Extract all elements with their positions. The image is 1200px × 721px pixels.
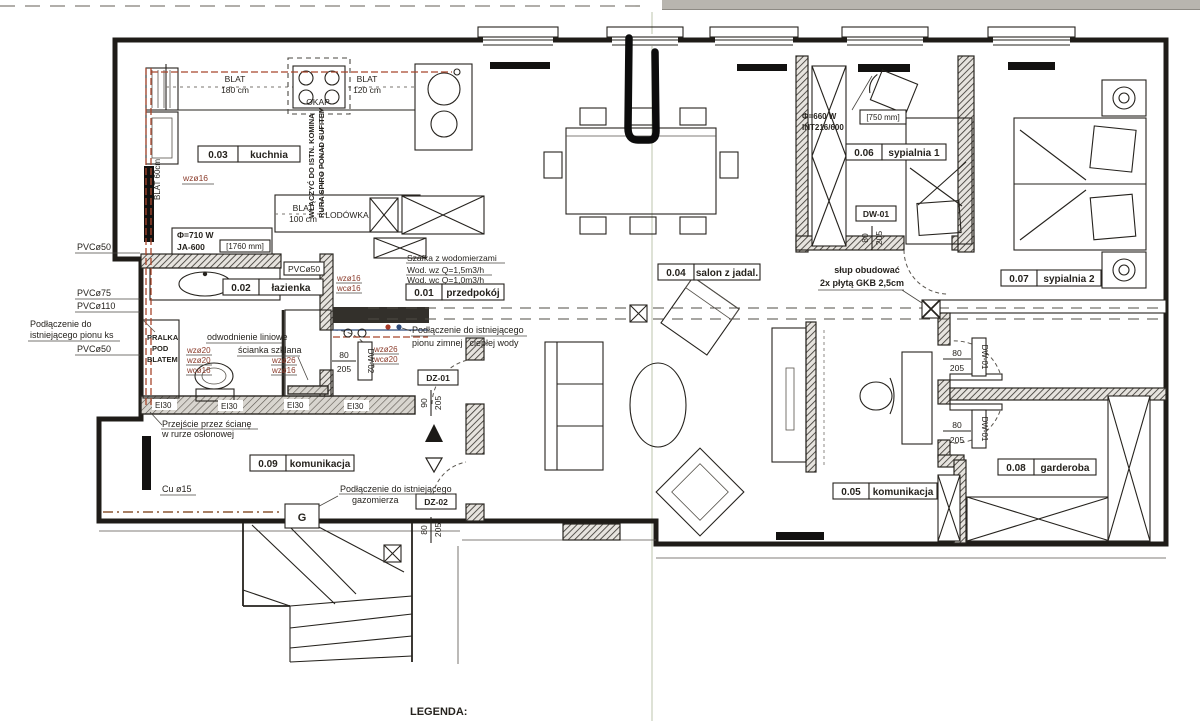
room-name: łazienka: [272, 283, 311, 294]
garderoba-wardrobe-right: [1108, 396, 1150, 541]
room-name: sypialnia 2: [1043, 274, 1095, 285]
column-note-line2: 2x płytą GKB 2,5cm: [820, 278, 904, 288]
pralka-line2: POD: [152, 344, 169, 353]
entry-wall-hatched-segment: [563, 524, 620, 540]
blat180-size: 180 cm: [221, 85, 249, 95]
door-height: 205: [950, 435, 964, 445]
bedroom2-furniture: [1014, 80, 1146, 288]
scan-top-gray-band: [662, 0, 1200, 9]
door-code: DZ-02: [424, 497, 448, 507]
room-number: 0.07: [1009, 274, 1029, 285]
column-symbol: [922, 300, 940, 318]
bathroom-top-wall: [141, 254, 281, 268]
connection-point-hot: [385, 324, 390, 329]
bedroom1-wardrobe: [812, 66, 846, 246]
bedroom1-left-wall: [796, 56, 808, 252]
gas-note-line2: gazomierza: [352, 495, 399, 505]
fridge: [370, 198, 398, 232]
wz16-kitchen-label: wzø16: [182, 173, 208, 183]
entry-triangle-down: [426, 458, 442, 472]
radiator-power: Φ=660 W: [802, 112, 837, 121]
room-label-komunikacja-05: 0.05 komunikacja: [833, 483, 937, 499]
linear-drain: [288, 386, 328, 394]
dining-table: [544, 108, 738, 234]
kitchen-radiator-label: Φ=710 W JA-600 [1760 mm]: [172, 228, 272, 254]
hall-wardrobe-1: [402, 196, 484, 234]
pvc50-bath-label: PVCø50: [288, 264, 320, 274]
gas-meter-box: G: [285, 504, 319, 528]
water-note-line1: Podłączenie do istniejącego: [412, 325, 524, 335]
existing-riser-black: [142, 436, 151, 490]
window-salon-1: [478, 27, 558, 46]
bedroom2-bed: [1014, 118, 1146, 250]
pvc50-top-label: PVCø50: [77, 242, 111, 252]
pvc50-bottom-label: PVCø50: [77, 344, 111, 354]
hall-salon-wall-c: [466, 504, 484, 521]
chimney-note-line2: RURA SPIRO PONAD SUFITEM: [317, 107, 326, 218]
room-label-garderoba: 0.08 garderoba: [998, 459, 1096, 475]
door-code: DW-01: [980, 417, 989, 442]
wz16-bath-label: wzø16: [271, 366, 296, 375]
room-number: 0.01: [414, 288, 434, 299]
room-number: 0.06: [854, 148, 874, 159]
radiator-salon-1: [490, 62, 550, 69]
ks-note-line1: Podłączenie do: [30, 319, 92, 329]
wz16-hall-label: wzø16: [336, 274, 361, 283]
door-width: 80: [952, 348, 962, 358]
radiator-model: JA-600: [177, 242, 205, 252]
ks-note-line2: istniejącego pionu ks: [30, 330, 114, 340]
door-width: 80: [952, 420, 962, 430]
room-label-sypialnia2: 0.07 sypialnia 2: [1001, 270, 1101, 286]
legend-title: LEGENDA:: [410, 706, 467, 718]
nightstand-top: [1102, 80, 1146, 116]
shaft-symbol-salon: [630, 305, 647, 322]
room-number: 0.03: [208, 150, 228, 161]
door-arc-bedroom1: [904, 250, 948, 294]
office-chair: [860, 382, 892, 410]
door-width: 80: [419, 525, 429, 535]
salon-media-wall: [806, 322, 816, 472]
scanned-floor-plan: 0.03 kuchnia 0.02 łazienka 0.01 przedpok…: [0, 0, 1200, 721]
meter-title: Szafka z wodomierzami: [407, 253, 497, 263]
ei30-4: EI30: [347, 402, 364, 411]
kitchen-annotations: BLAT 180 cm OKAP BLAT 120 cm BLAT 100 cm…: [153, 74, 381, 254]
sink-bowl-1: [428, 73, 460, 105]
door-width: 80: [860, 233, 870, 243]
radiator-bedroom2: [1008, 62, 1055, 70]
radiator-power: Φ=710 W: [177, 230, 214, 240]
gas-note-line1: Podłączenie do istniejącego: [340, 484, 452, 494]
wc16-hall-label: wcø16: [336, 284, 361, 293]
room-name: komunikacja: [290, 459, 351, 470]
sofa: [545, 342, 603, 470]
dz01-door-label: DZ-01 90 205: [418, 370, 458, 416]
floor-plan-canvas: 0.03 kuchnia 0.02 łazienka 0.01 przedpok…: [0, 0, 1200, 721]
meter-line2: Wod. wc Q=1,0m3/h: [407, 275, 484, 285]
sink-bowl-2: [431, 111, 457, 137]
salon-annotations: słup obudować 2x płytą GKB 2,5cm: [818, 265, 922, 303]
media-sideboard: [772, 328, 806, 462]
pralka-line3: BLATEM: [147, 355, 178, 364]
pralka-line1: PRALKA: [147, 333, 179, 342]
basin-tap: [203, 272, 207, 276]
room-name: przedpokój: [446, 288, 500, 299]
dw01-garderoba-label-2: 80 205 DW-01: [943, 410, 989, 448]
room-name: salon z jadal.: [696, 268, 758, 279]
room-name: kuchnia: [250, 150, 288, 161]
door-width: 90: [419, 398, 429, 408]
wc20-hall-label: wcø20: [373, 355, 398, 364]
corridor-wall-b: [938, 380, 950, 404]
room-number: 0.04: [666, 268, 686, 279]
door-width: 80: [339, 350, 349, 360]
room-label-salon: 0.04 salon z jadal.: [658, 264, 760, 280]
room-number: 0.08: [1006, 463, 1026, 474]
salon-furniture: [544, 108, 806, 536]
cu15-label: Cu ø15: [162, 484, 192, 494]
blat60-label: BLAT 60cm: [153, 159, 162, 200]
blat180-label: BLAT: [225, 74, 246, 84]
garderoba-wardrobe-bottom: [967, 497, 1110, 541]
window-salon-3: [710, 27, 798, 46]
column-note-line1: słup obudować: [834, 265, 900, 275]
room-name: komunikacja: [873, 487, 934, 498]
bedroom1-chair: [865, 68, 918, 114]
ei30-1: EI30: [155, 401, 172, 410]
room-label-przedpokoj: 0.01 przedpokój: [406, 284, 504, 300]
radiator-salon-2: [737, 64, 787, 71]
okap-label: OKAP: [306, 97, 330, 107]
door-code: DZ-01: [426, 373, 450, 383]
wz26-hall-label: wzø26: [373, 345, 398, 354]
gas-meter-symbol: G: [298, 512, 307, 524]
pvc75-label: PVCø75: [77, 288, 111, 298]
window-bedroom2: [988, 27, 1075, 46]
room-label-komunikacja-09: 0.09 komunikacja: [250, 455, 354, 471]
entry-triangle-up: [425, 424, 443, 442]
door-height: 205: [433, 523, 443, 537]
meter-line1: Wod. wz Q=1,5m3/h: [407, 265, 484, 275]
radiator-width: [1760 mm]: [226, 242, 264, 251]
corridor-desk-area: [860, 352, 932, 444]
room-label-kuchnia: 0.03 kuchnia: [198, 146, 300, 162]
ei30-2: EI30: [221, 402, 238, 411]
shaft-symbol-entry: [384, 545, 401, 562]
pass-note-line2: w rurze osłonowej: [161, 429, 234, 439]
heating-valve: [454, 69, 460, 75]
blat120-label: BLAT: [357, 74, 378, 84]
garderoba-wardrobe-left: [938, 475, 960, 541]
bathroom-bottom-fire-wall: [141, 396, 415, 414]
wz26-bath-label: wzø26: [271, 356, 296, 365]
wz20-b-label: wzø20: [186, 356, 211, 365]
radiator-model: INT216/600: [802, 123, 844, 132]
room-label-sypialnia1: 0.06 sypialnia 1: [846, 144, 946, 160]
glass-note: ścianka szklana: [238, 345, 302, 355]
door-code: DW-01: [980, 345, 989, 370]
room-name: garderoba: [1041, 463, 1090, 474]
room-number: 0.02: [231, 283, 251, 294]
bedroom2-bottom-wall: [940, 300, 1166, 313]
wz20-a-label: wzø20: [186, 346, 211, 355]
connection-point-cold: [396, 324, 401, 329]
door-height: 205: [874, 231, 884, 245]
room-number: 0.05: [841, 487, 861, 498]
nightstand-bottom: [1102, 252, 1146, 288]
chimney-note-line1: WŁĄCZYĆ DO ISTN. KOMINA: [307, 113, 316, 218]
windows: [478, 27, 1075, 540]
hall-salon-wall-b: [466, 404, 484, 454]
armchair-top: [661, 277, 739, 355]
pass-note-line1: Przejście przez ścianę: [162, 419, 252, 429]
ei30-3: EI30: [287, 401, 304, 410]
radiator-corridor-south: [776, 532, 824, 540]
radiator-width: [750 mm]: [866, 113, 899, 122]
window-bedroom1: [842, 27, 928, 46]
wc16-label: wcø16: [186, 366, 211, 375]
door-height: 205: [950, 363, 964, 373]
coffee-table: [630, 363, 686, 447]
lodowka-label: LODÓWKA: [325, 210, 369, 220]
room-name: sypialnia 1: [888, 148, 940, 159]
hall-partition-wall: [333, 307, 429, 323]
room-number: 0.09: [258, 459, 278, 470]
pvc110-label: PVCø110: [77, 301, 115, 311]
room-label-lazienka: 0.02 łazienka: [223, 279, 323, 295]
door-leaf-garderoba-2: [950, 404, 1002, 410]
desk: [902, 352, 932, 444]
blat120-size: 120 cm: [353, 85, 381, 95]
walls: [99, 40, 1166, 558]
staircase: [243, 523, 458, 664]
drain-note: odwodnienie liniowe: [207, 332, 288, 342]
door-code: DW-01: [863, 209, 890, 219]
window-salon-2: [607, 27, 683, 46]
door-height: 205: [337, 364, 351, 374]
armchair-bottom: [656, 448, 744, 536]
dw02-door-label: 80 205 DW-02: [332, 342, 375, 380]
water-note-line2: pionu zimnej i ciepłej wody: [412, 338, 519, 348]
stair-walls: [243, 523, 412, 662]
door-height: 205: [433, 396, 443, 410]
